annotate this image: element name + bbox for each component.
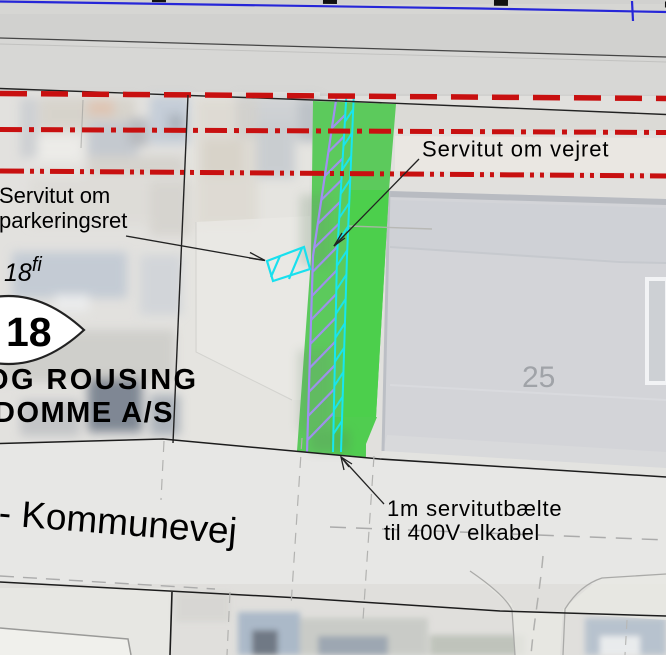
svg-text:DOMME A/S: DOMME A/S: [0, 397, 174, 429]
svg-text:25: 25: [522, 361, 555, 394]
svg-text:Servitut omparkeringsret: Servitut omparkeringsret: [0, 183, 127, 233]
svg-text:1m servitutbæltetil 400V elkab: 1m servitutbæltetil 400V elkabel: [384, 496, 562, 545]
svg-text:OG ROUSING: OG ROUSING: [0, 364, 199, 396]
svg-text:Servitut om vejret: Servitut om vejret: [422, 137, 609, 162]
svg-text:18: 18: [6, 309, 52, 355]
